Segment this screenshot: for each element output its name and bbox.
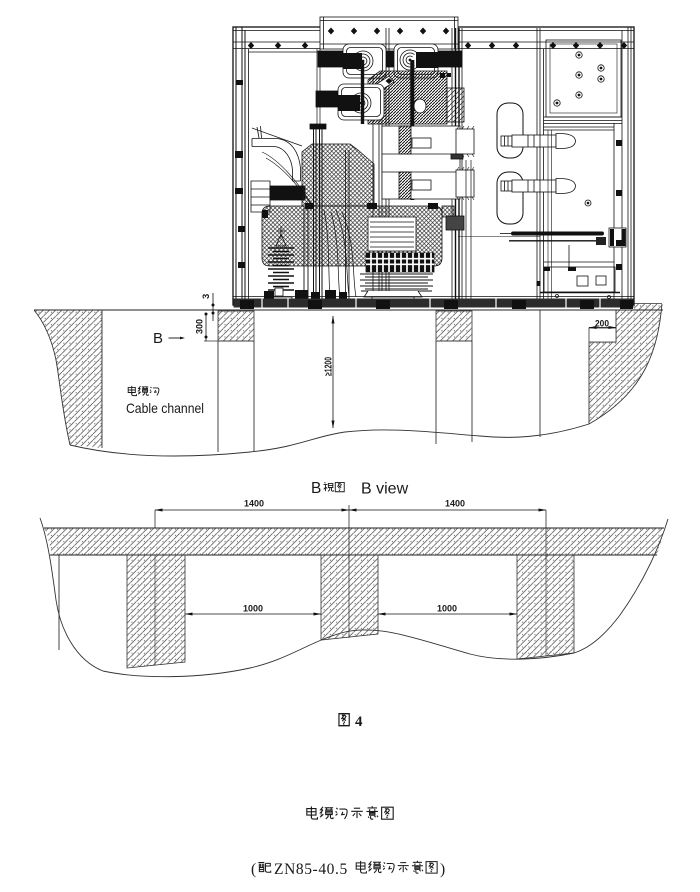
svg-text:300: 300 — [195, 319, 206, 334]
svg-text:): ) — [440, 861, 445, 878]
svg-text:ZN85-40.5: ZN85-40.5 — [274, 861, 348, 878]
svg-text:1000: 1000 — [243, 604, 263, 615]
svg-text:1000: 1000 — [437, 604, 457, 615]
svg-text:200: 200 — [595, 319, 609, 329]
svg-text:≥1200: ≥1200 — [324, 357, 335, 376]
svg-text:B view: B view — [361, 481, 409, 498]
svg-text:Cable channel: Cable channel — [126, 400, 204, 416]
svg-text:1400: 1400 — [445, 499, 465, 510]
svg-text:1400: 1400 — [244, 499, 264, 510]
svg-text:B: B — [153, 330, 163, 347]
svg-text:4: 4 — [355, 714, 363, 730]
svg-text:(: ( — [251, 861, 256, 878]
svg-text:B: B — [311, 480, 321, 497]
svg-text:3: 3 — [201, 294, 212, 299]
